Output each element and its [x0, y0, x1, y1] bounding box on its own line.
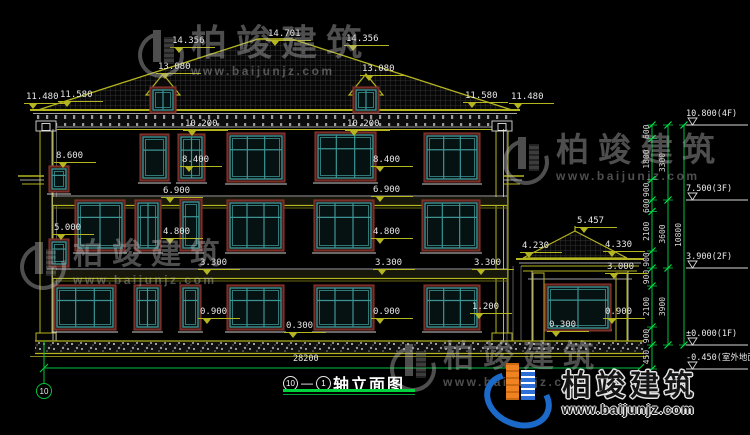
window — [313, 133, 378, 184]
window — [133, 201, 163, 254]
dim-label: 3.300 — [472, 258, 514, 270]
main-roof — [30, 39, 520, 130]
brand-url: www.baijunjz.com — [562, 402, 698, 417]
chain-dim: 600 — [642, 124, 651, 139]
window — [312, 201, 376, 254]
title-underline-thin — [283, 394, 415, 395]
dim-label: 0.300 — [284, 321, 326, 333]
title-underline — [283, 389, 415, 392]
window — [52, 286, 118, 333]
window — [138, 135, 171, 184]
level-flag-text: 3.900(2F) — [686, 252, 732, 262]
chain-dim: 3300 — [658, 153, 667, 172]
level-flag-text: 7.500(3F) — [686, 184, 732, 194]
brand-logo: 柏竣建筑 www.baijunjz.com — [480, 358, 698, 430]
window — [225, 201, 286, 254]
window — [420, 201, 482, 254]
level-flag: ±0.000(1F) — [686, 329, 748, 345]
dim-label: 4.800 — [371, 227, 413, 239]
cad-elevation-canvas: 6001800900600210090090021009004503300360… — [0, 0, 750, 435]
chain-dim: 3600 — [658, 224, 667, 243]
window — [47, 240, 71, 270]
chain-dim: 1800 — [642, 149, 651, 168]
chain-dim: 900 — [642, 329, 651, 344]
axis-bubble-10: 10 — [36, 383, 52, 399]
dim-label: 5.457 — [575, 216, 617, 228]
dim-label: 0.900 — [198, 307, 240, 319]
dim-label: 8.400 — [180, 155, 222, 167]
dim-label: 11.580 — [58, 90, 103, 102]
dim-label: 4.800 — [161, 227, 203, 239]
level-flag: 3.900(2F) — [686, 252, 748, 268]
level-flags: 10.800(4F)7.500(3F)3.900(2F)±0.000(1F)-0… — [686, 109, 750, 369]
window — [47, 167, 71, 195]
window — [354, 88, 379, 113]
dim-label: 8.400 — [371, 155, 413, 167]
chain-dim: 600 — [642, 198, 651, 213]
dim-label: 8.600 — [54, 151, 96, 163]
dim-label: 14.356 — [170, 36, 215, 48]
dim-label: 3.300 — [198, 258, 240, 270]
dim-label: 5.000 — [52, 223, 94, 235]
window — [422, 134, 482, 185]
dim-label: 6.900 — [161, 186, 203, 198]
dim-label: 0.900 — [371, 307, 413, 319]
dim-label: 11.580 — [463, 91, 508, 103]
dim-label: 3.300 — [373, 258, 415, 270]
dim-label: 3.000 — [605, 262, 647, 274]
level-dimension-chain: 6001800900600210090090021009004503300360… — [642, 122, 689, 373]
dim-label: 10.200 — [183, 119, 228, 131]
dim-label: 14.356 — [344, 34, 389, 46]
dim-label: 6.900 — [371, 185, 413, 197]
window — [151, 88, 176, 113]
dim-label: 10.200 — [345, 119, 390, 131]
building-icon — [521, 370, 535, 400]
dim-label: 13.080 — [156, 62, 201, 74]
dim-label: 0.900 — [603, 307, 645, 319]
dim-label: 1.200 — [470, 302, 512, 314]
level-flag: 10.800(4F) — [686, 109, 748, 125]
level-flag: 7.500(3F) — [686, 184, 748, 200]
brand-logo-icon — [480, 358, 554, 430]
overall-dimension-text: 28200 — [293, 354, 319, 364]
dim-label: 13.080 — [360, 64, 405, 76]
chain-dim: 10800 — [674, 223, 683, 247]
building-icon — [506, 363, 519, 400]
level-flag-text: ±0.000(1F) — [686, 329, 737, 339]
ground — [30, 341, 648, 357]
level-flag-text: 10.800(4F) — [686, 109, 737, 119]
dim-label: 4.230 — [520, 241, 562, 253]
axis-dash: — — [301, 376, 313, 390]
chain-dim: 900 — [642, 182, 651, 197]
chain-dim: 3900 — [658, 297, 667, 316]
brand-name: 柏竣建筑 — [562, 371, 698, 403]
chain-dim: 2100 — [642, 221, 651, 240]
dim-label: 4.330 — [603, 240, 645, 252]
window — [132, 286, 163, 333]
dim-label: 0.300 — [547, 320, 589, 332]
dim-label: 14.701 — [266, 29, 311, 41]
dim-label: 11.480 — [509, 92, 554, 104]
window — [225, 134, 287, 185]
